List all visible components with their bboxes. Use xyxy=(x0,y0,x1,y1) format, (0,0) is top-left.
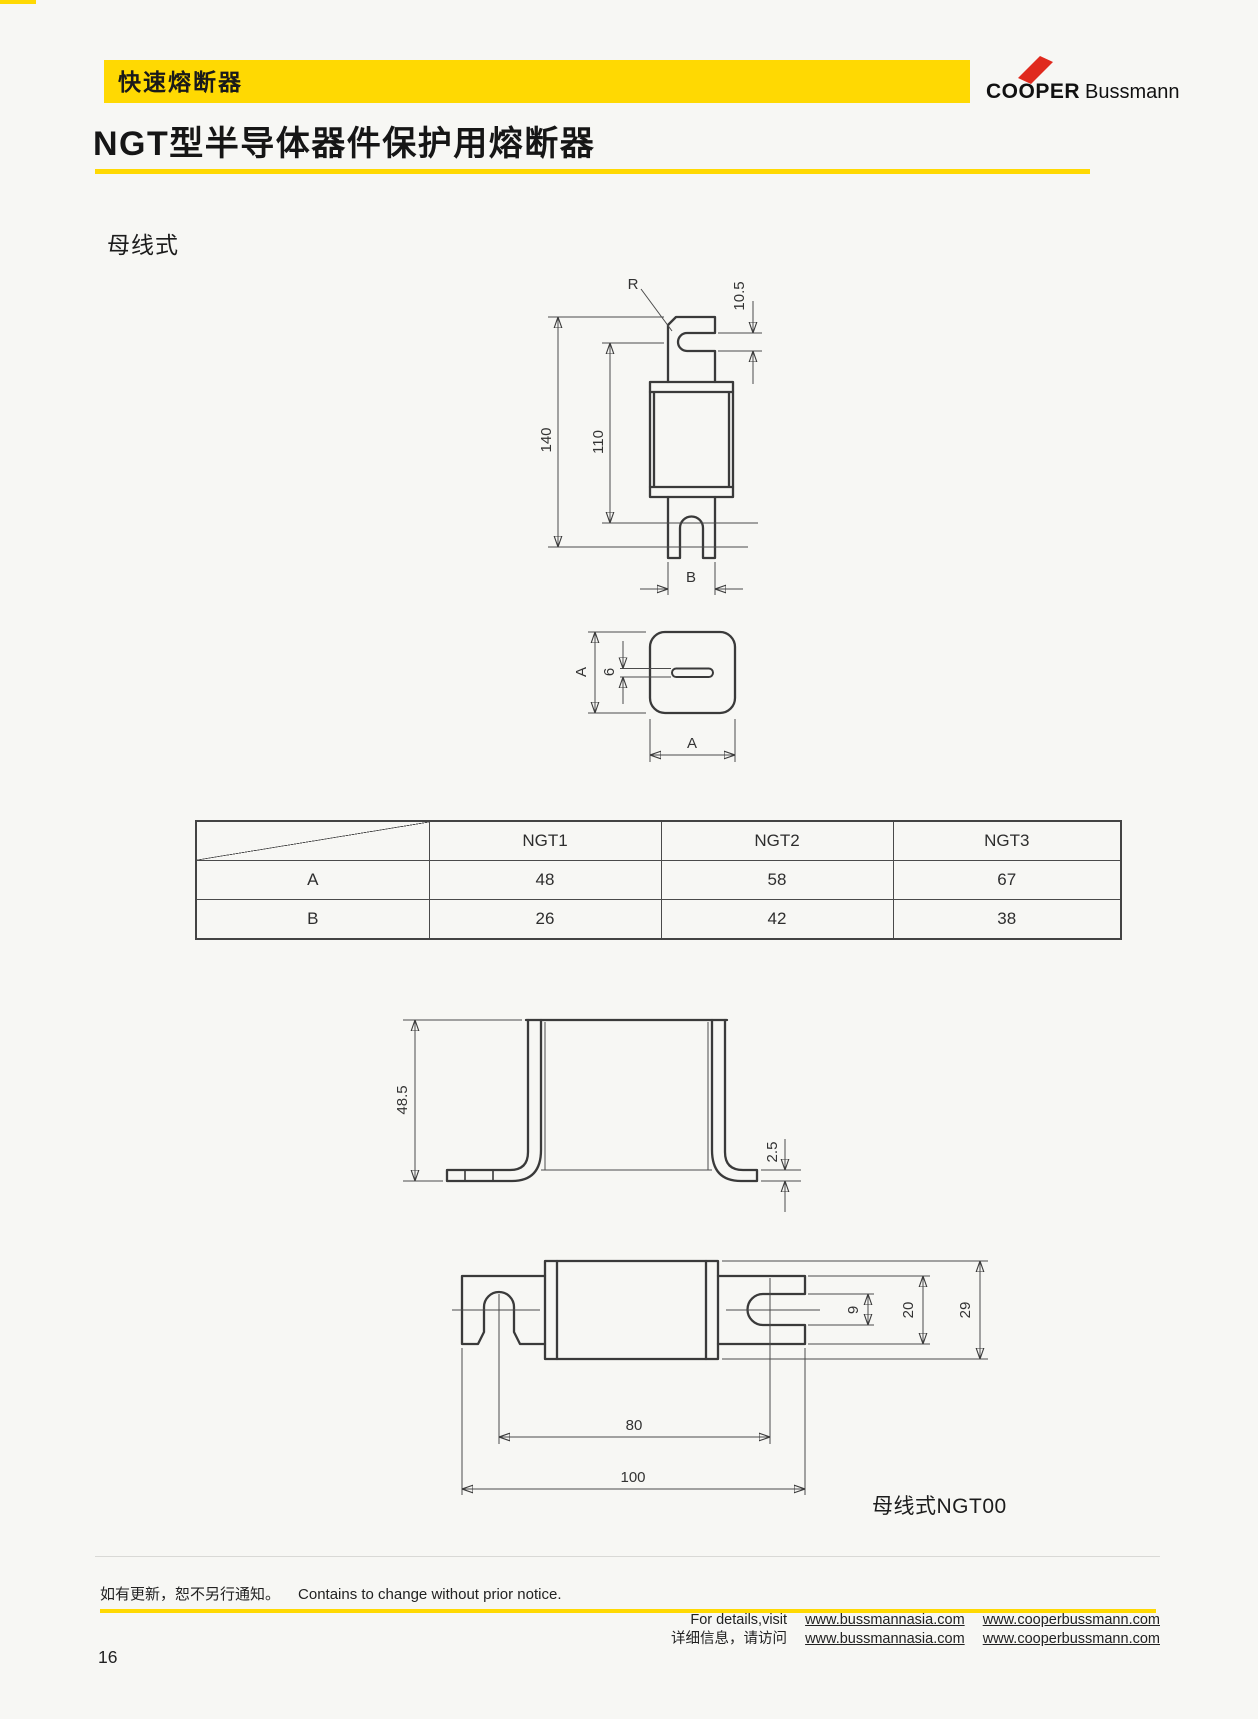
bracket-view-drawing: 48.5 2.5 xyxy=(385,1000,815,1230)
footer-links: For details,visit www.bussmannasia.com w… xyxy=(0,1611,1160,1649)
category-banner: 快速熔断器 xyxy=(104,60,970,103)
category-banner-label: 快速熔断器 xyxy=(104,60,243,104)
table-header-ngt2: NGT2 xyxy=(661,821,893,861)
fuse-outline xyxy=(650,317,733,558)
bussmannasia-link[interactable]: www.bussmannasia.com xyxy=(805,1631,965,1647)
bussmannasia-link[interactable]: www.bussmannasia.com xyxy=(805,1612,965,1628)
dimension-lines xyxy=(452,1261,988,1495)
drawing-caption: 母线式NGT00 xyxy=(872,1490,1007,1520)
cell-b-ngt1: 26 xyxy=(429,900,661,940)
dim-body-width: A xyxy=(687,735,697,752)
dim-overall-length: 100 xyxy=(620,1469,645,1486)
dim-bracket-height: 48.5 xyxy=(394,1085,411,1114)
footer-links-en-prefix: For details,visit xyxy=(690,1612,787,1628)
dim-radius-label: R xyxy=(628,276,639,293)
change-notice-cn: 如有更新，恕不另行通知。 xyxy=(100,1586,280,1603)
dim-blade-height: 20 xyxy=(900,1302,917,1319)
change-notice-en: Contains to change without prior notice. xyxy=(298,1586,562,1603)
dimension-lines xyxy=(588,632,735,762)
dim-slot-width: 10.5 xyxy=(731,281,748,310)
footer-links-en: For details,visit www.bussmannasia.com w… xyxy=(0,1611,1160,1630)
dim-blade-width: B xyxy=(686,569,696,586)
section-label: 母线式 xyxy=(107,226,179,260)
table-row: B 26 42 38 xyxy=(196,900,1121,940)
footer-links-cn: 详细信息，请访问 www.bussmannasia.com www.cooper… xyxy=(0,1630,1160,1649)
dim-body-side: A xyxy=(573,667,590,677)
cell-a-ngt1: 48 xyxy=(429,861,661,900)
cell-b-ngt3: 38 xyxy=(893,900,1121,940)
bracket-outline xyxy=(447,1020,757,1181)
table-header-row: NGT1 NGT2 NGT3 xyxy=(196,821,1121,861)
cooperbussmann-link[interactable]: www.cooperbussmann.com xyxy=(983,1631,1160,1647)
side-view-ngt00-drawing: 9 20 29 80 100 xyxy=(440,1250,1000,1520)
change-notice: 如有更新，恕不另行通知。Contains to change without p… xyxy=(100,1583,562,1604)
dimension-lines xyxy=(403,1020,801,1212)
cooperbussmann-link[interactable]: www.cooperbussmann.com xyxy=(983,1612,1160,1628)
dim-foot-thickness: 2.5 xyxy=(764,1142,781,1163)
footer-divider xyxy=(95,1556,1160,1557)
row-label: A xyxy=(196,861,429,900)
table-header-ngt1: NGT1 xyxy=(429,821,661,861)
dim-body-length: 110 xyxy=(590,430,607,454)
datasheet-page: 快速熔断器 COOPERBussmann NGT型半导体器件保护用熔断器 母线式 xyxy=(0,0,1258,1719)
front-view-drawing: 140 110 10.5 R B xyxy=(535,245,785,605)
cell-a-ngt3: 67 xyxy=(893,861,1121,900)
brand-logo-bussmann: Bussmann xyxy=(1085,81,1180,103)
table-corner-cell xyxy=(196,821,429,861)
table-header-ngt3: NGT3 xyxy=(893,821,1121,861)
row-label: B xyxy=(196,900,429,940)
cell-b-ngt2: 42 xyxy=(661,900,893,940)
title-underline xyxy=(95,169,1090,174)
page-title: NGT型半导体器件保护用熔断器 xyxy=(93,116,595,165)
footer-links-cn-prefix: 详细信息，请访问 xyxy=(671,1631,787,1647)
dim-slot-height: 6 xyxy=(601,668,618,676)
brand-logo: COOPERBussmann xyxy=(986,80,1180,104)
dim-body-height: 29 xyxy=(957,1302,974,1319)
page-number: 16 xyxy=(98,1647,117,1668)
dimension-table: NGT1 NGT2 NGT3 A 48 58 67 B 26 42 38 xyxy=(195,820,1122,940)
dim-slot-width: 9 xyxy=(845,1306,862,1314)
top-view-drawing: A 6 A xyxy=(565,618,795,778)
brand-logo-cooper: COOPER xyxy=(986,80,1080,103)
fuse-top-outline xyxy=(650,632,735,713)
dim-slot-centers: 80 xyxy=(626,1417,643,1434)
table-row: A 48 58 67 xyxy=(196,861,1121,900)
page-edge-mark xyxy=(0,0,36,4)
dim-overall-length: 140 xyxy=(538,427,555,452)
cell-a-ngt2: 58 xyxy=(661,861,893,900)
